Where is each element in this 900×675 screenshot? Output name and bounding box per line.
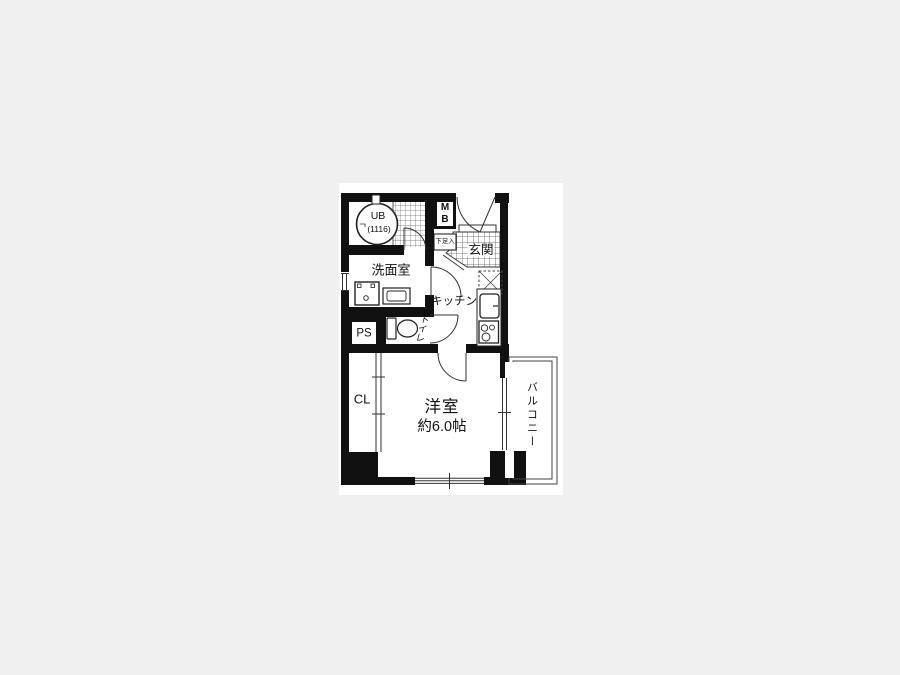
kitchen-counter-icon bbox=[477, 289, 501, 346]
wall-top bbox=[341, 193, 434, 202]
wall-bath-mb-divider bbox=[425, 193, 434, 266]
washroom-label: 洗面室 bbox=[371, 264, 410, 277]
main-room-size-label: 約6.0帖 bbox=[417, 420, 466, 435]
meter-box-label-b: B bbox=[441, 215, 448, 225]
shoe-storage-label: 下足入 bbox=[435, 239, 455, 246]
wall-bath-bottom bbox=[341, 245, 404, 255]
wall-left-upper bbox=[341, 193, 349, 272]
unit-bath-label: UB bbox=[371, 211, 386, 222]
wall-bottom-left-block bbox=[341, 452, 378, 485]
kitchen-label: キッチン bbox=[431, 296, 477, 308]
wall-bottom-stub bbox=[484, 477, 490, 485]
floor-plan-canvas: UB (1116) M B 玄関 下足入 洗面室 キッチン トイレ PS CL … bbox=[0, 0, 900, 675]
balcony-label: バルコニー bbox=[526, 381, 537, 449]
main-room-label: 洋室 bbox=[425, 399, 460, 416]
wall-bottom bbox=[378, 477, 415, 485]
meter-box-label-m: M bbox=[441, 203, 449, 213]
floor-plan-drawing bbox=[0, 0, 900, 675]
entrance-label: 玄関 bbox=[467, 244, 494, 257]
pipe-space-label: PS bbox=[356, 328, 371, 340]
closet-label: CL bbox=[354, 393, 371, 406]
unit-bath-size-label: (1116) bbox=[367, 225, 390, 234]
wall-room-top-left bbox=[341, 344, 438, 353]
